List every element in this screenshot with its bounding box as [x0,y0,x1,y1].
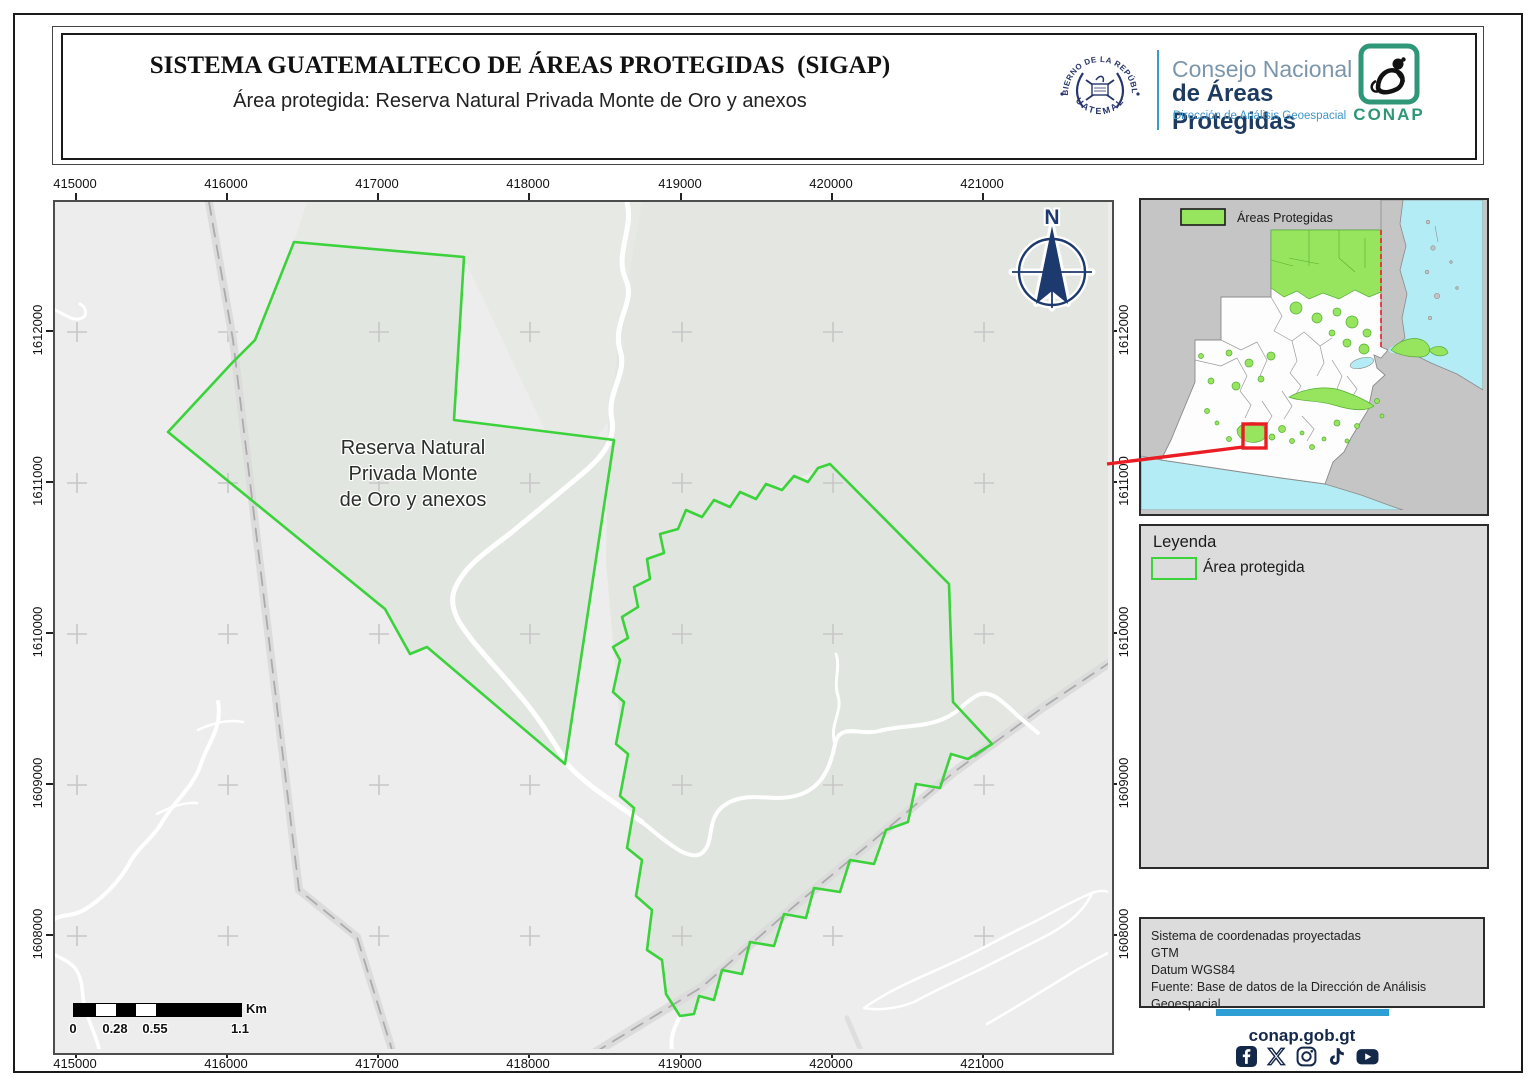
main-map [53,200,1114,1055]
legend-title: Leyenda [1153,533,1216,552]
tick-mark [46,934,53,936]
info-line: Sistema de coordenadas proyectadas [1151,928,1483,945]
x-axis-label: 420000 [801,1056,861,1071]
tiktok-icon[interactable] [1326,1046,1347,1067]
inset-locator-map: Áreas Protegidas [1139,198,1489,516]
scale-label: 1.1 [220,1021,260,1036]
tick-mark [528,193,530,200]
x-axis-label: 417000 [347,1056,407,1071]
x-axis-label: 418000 [498,1056,558,1071]
x-axis-label: 420000 [801,176,861,191]
protected-area-swatch [1151,557,1197,580]
instagram-icon[interactable] [1296,1046,1317,1067]
y-axis-label: 1608000 [31,894,45,974]
y-axis-label: 1608000 [1117,894,1131,974]
tick-mark [46,481,53,483]
tick-mark [46,632,53,634]
youtube-icon[interactable] [1356,1046,1379,1067]
social-icons-row [1236,1046,1381,1067]
conap-wordmark-line3: Dirección de Análisis Geoespacial [1173,110,1363,122]
facebook-icon[interactable] [1236,1046,1257,1067]
y-axis-label: 1611000 [31,441,45,521]
x-icon[interactable] [1266,1046,1287,1067]
inset-legend-swatch [1181,209,1225,225]
header-divider [1157,50,1159,130]
tick-mark [377,193,379,200]
x-axis-label: 415000 [45,176,105,191]
main-map-canvas [55,202,1108,1049]
tick-mark [46,330,53,332]
reserve-name-line3: de Oro y anexos [313,489,513,512]
inset-map-canvas: Áreas Protegidas [1141,200,1483,510]
scale-label: 0 [53,1021,93,1036]
y-axis-label: 1611000 [1117,441,1131,521]
scale-unit-label: Km [246,1001,267,1016]
conap-wordmark-line2: de Áreas Protegidas [1172,80,1372,136]
y-axis-label: 1610000 [31,592,45,672]
conap-logo-icon [1356,42,1422,106]
info-line: Datum WGS84 [1151,962,1483,979]
x-axis-label: 417000 [347,176,407,191]
info-line: Fuente: Base de datos de la Dirección de… [1151,979,1483,1013]
x-axis-label: 419000 [650,176,710,191]
x-axis-label: 419000 [650,1056,710,1071]
tick-mark [46,783,53,785]
legend-item-label: Área protegida [1203,559,1305,577]
government-seal-logo: GOBIERNO DE LA REPÚBLICA GUATEMALA [1050,40,1150,140]
x-axis-label: 418000 [498,176,558,191]
scale-bar [73,1003,242,1017]
y-axis-label: 1609000 [1117,743,1131,823]
x-axis-label: 416000 [196,176,256,191]
legend-panel: Leyenda Área protegida [1139,524,1489,869]
reserve-name-line1: Reserva Natural [313,437,513,460]
tick-mark [680,193,682,200]
y-axis-label: 1610000 [1117,592,1131,672]
x-axis-label: 421000 [952,176,1012,191]
x-axis-label: 416000 [196,1056,256,1071]
svg-text:GUATEMALA: GUATEMALA [1050,40,1127,116]
tick-mark [831,193,833,200]
inset-legend-label: Áreas Protegidas [1237,210,1333,225]
scale-label: 0.55 [135,1021,175,1036]
conap-acronym-label: CONAP [1344,105,1434,125]
map-sheet: SISTEMA GUATEMALTECO DE ÁREAS PROTEGIDAS… [0,0,1536,1086]
x-axis-label: 415000 [45,1056,105,1071]
conap-wordmark-line1: Consejo Nacional [1172,56,1362,83]
y-axis-label: 1612000 [1117,290,1131,370]
reserve-name-line2: Privada Monte [313,463,513,486]
page-subtitle: Área protegida: Reserva Natural Privada … [90,90,950,113]
tick-mark [226,193,228,200]
north-arrow-icon: N [1005,205,1100,323]
tick-mark [75,193,77,200]
y-axis-label: 1612000 [31,290,45,370]
seal-bottom-text: GUATEMALA [1050,40,1127,116]
page-title: SISTEMA GUATEMALTECO DE ÁREAS PROTEGIDAS… [90,52,950,80]
x-axis-label: 421000 [952,1056,1012,1071]
tick-mark [982,193,984,200]
coordinate-system-info: Sistema de coordenadas proyectadas GTM D… [1139,917,1485,1008]
north-label: N [1044,206,1059,229]
info-line: GTM [1151,945,1483,962]
scale-label: 0.28 [95,1021,135,1036]
footer-accent-bar [1216,1009,1389,1016]
website-link[interactable]: conap.gob.gt [1232,1026,1372,1046]
y-axis-label: 1609000 [31,743,45,823]
